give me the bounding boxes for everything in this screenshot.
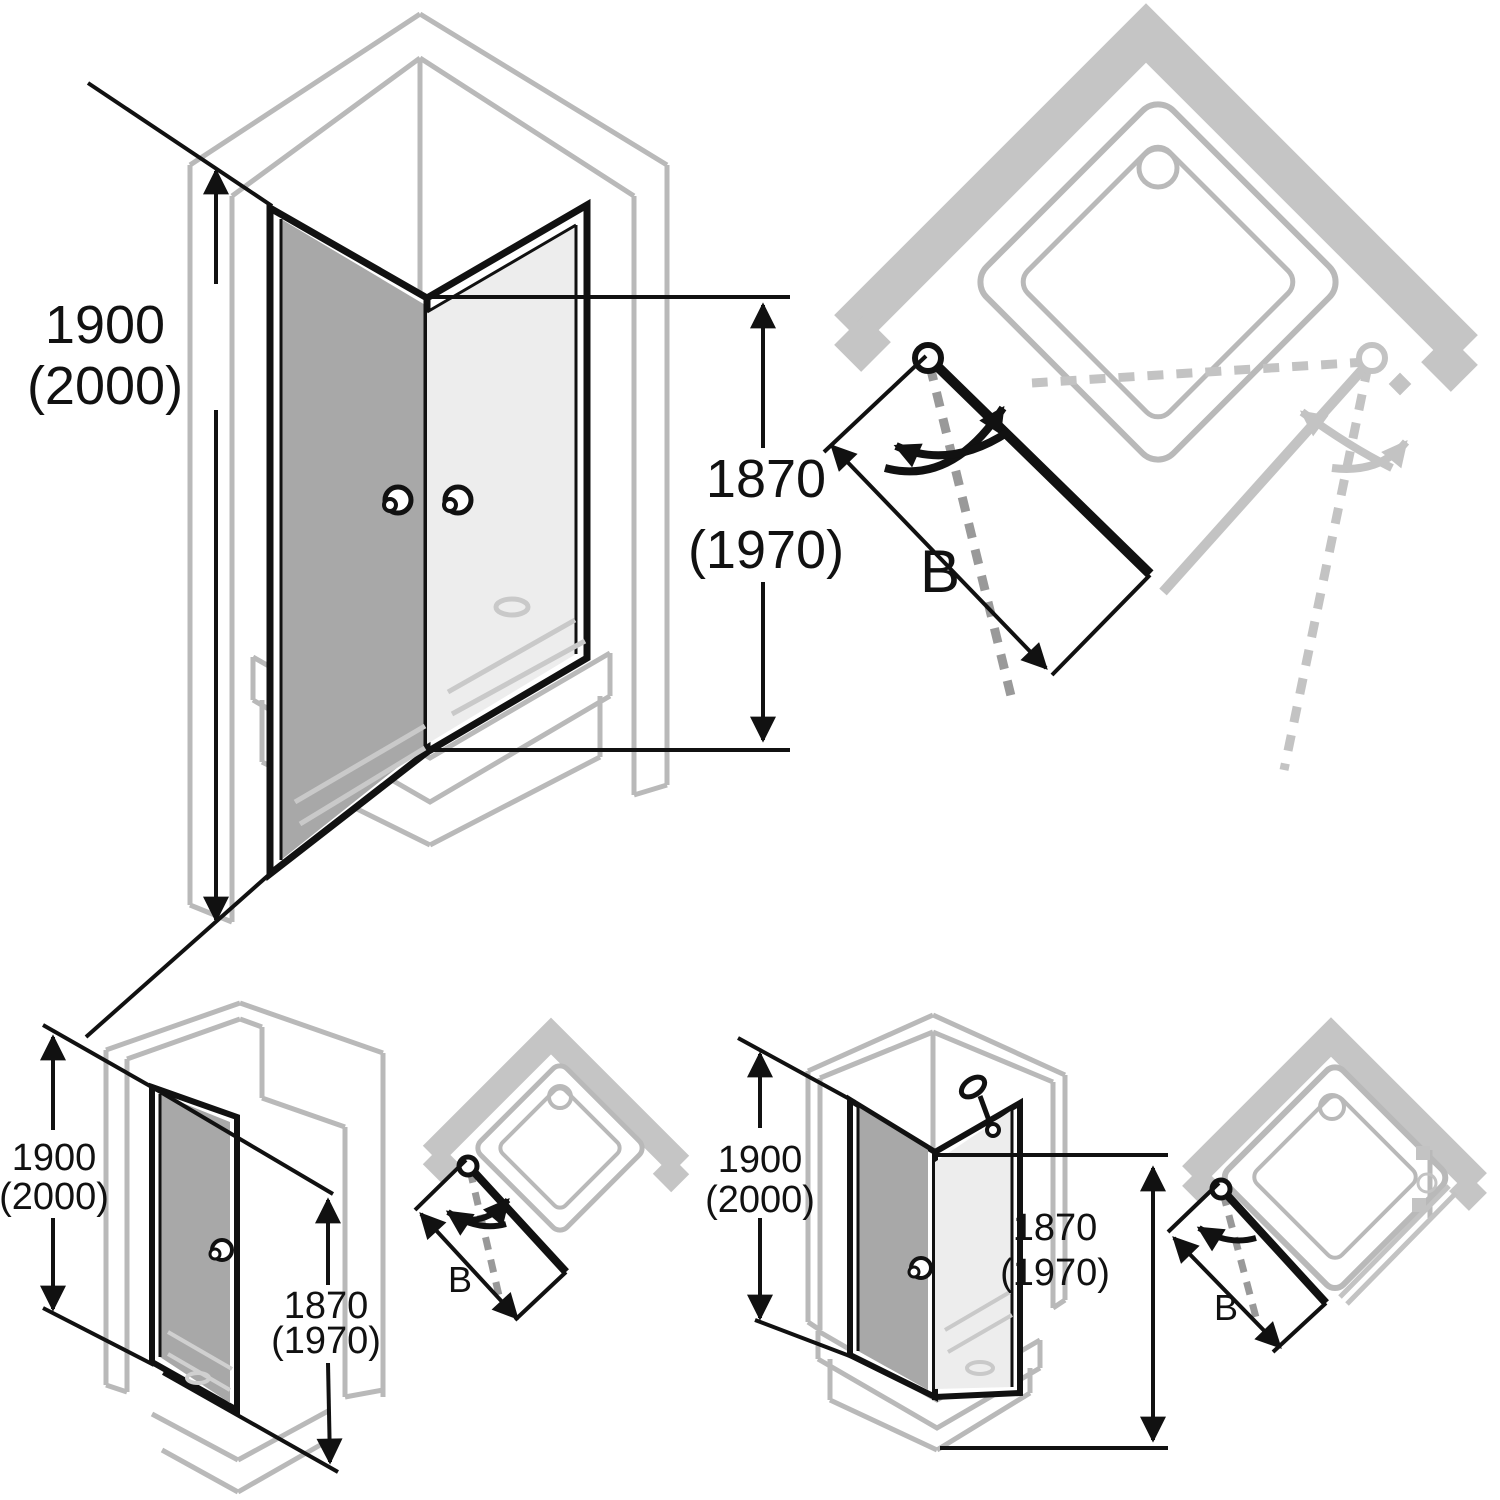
glass-height-label: 1870	[1013, 1207, 1098, 1249]
left-door-panel	[270, 208, 427, 874]
niche-door-plan-figure: B	[415, 1036, 680, 1320]
side-panel	[935, 1103, 1020, 1397]
height-dimension-label: 1900	[12, 1137, 97, 1179]
right-door-panel	[427, 205, 587, 752]
glass-height-alt-label: (1970)	[271, 1320, 381, 1362]
hinge-icon	[915, 345, 941, 371]
panel-bracket	[1416, 1146, 1430, 1160]
height-dimension-label: 1900	[45, 295, 165, 355]
swing-arc	[896, 432, 1008, 455]
height-dimension-alt-label: (2000)	[27, 356, 183, 416]
height-dimension-alt-label: (2000)	[0, 1176, 109, 1218]
door-knob	[909, 1258, 931, 1278]
width-dimension-label: B	[1214, 1287, 1238, 1328]
wall-bracket	[1389, 373, 1412, 396]
height-dimension-label: 1900	[718, 1139, 803, 1181]
glass-height-label: 1870	[706, 449, 826, 509]
door-glass	[858, 1107, 928, 1390]
corner-door-plan-figure: B	[1168, 1037, 1477, 1352]
glass-height-alt-label: (1970)	[688, 520, 844, 580]
niche-door-3d-figure: 1900 (2000) 1870 (1970)	[0, 1003, 383, 1492]
corner-entry-3d-figure: 1900 (2000) 1870 (1970)	[27, 14, 844, 1037]
technical-diagram-canvas: 1900 (2000) 1870 (1970)	[0, 0, 1500, 1500]
corner-entry-plan-figure: B	[824, 33, 1463, 770]
swing-arc	[1199, 1228, 1256, 1240]
door-panel	[850, 1100, 935, 1397]
panel-bracket	[1412, 1198, 1426, 1212]
shower-enclosure-spec-sheet: 1900 (2000) 1870 (1970)	[0, 0, 1500, 1500]
door-knob	[210, 1240, 232, 1260]
height-dimension-alt-label: (2000)	[705, 1179, 815, 1221]
right-door-glass	[427, 225, 576, 744]
width-dimension-label: B	[448, 1259, 472, 1300]
hinge-icon-light	[1359, 345, 1385, 371]
corner-door-3d-figure: 1900 (2000) 1870 (1970)	[705, 1015, 1168, 1450]
height-dimension	[86, 83, 272, 1037]
width-dimension-label: B	[920, 538, 960, 605]
glass-height-alt-label: (1970)	[1000, 1252, 1110, 1294]
